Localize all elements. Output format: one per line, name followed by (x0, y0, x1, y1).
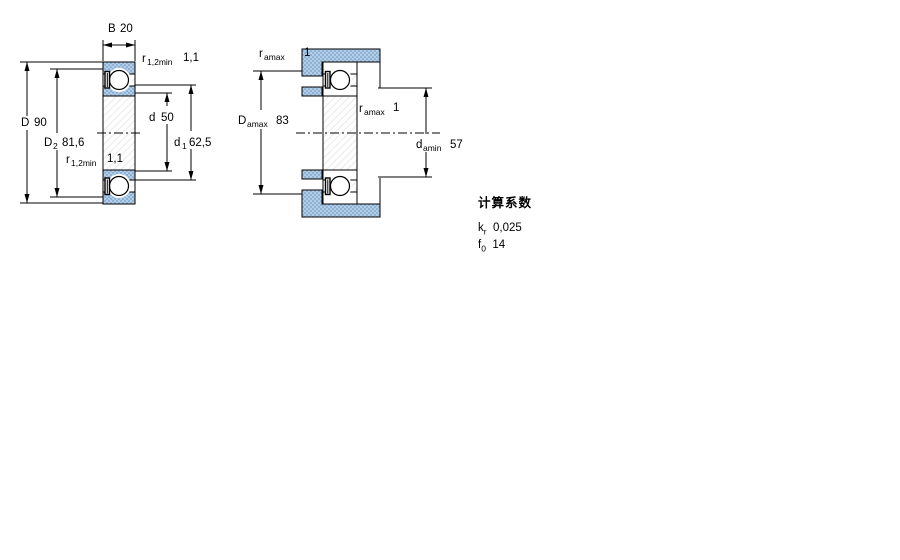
ball-top (331, 71, 350, 90)
label-d1-symbol: d (174, 137, 180, 149)
label-r12-top-symbol: r (142, 53, 146, 65)
bearing-datasheet-drawing: B 20 r 1,2min 1,1 D 90 D 2 81,6 r 1,2min… (0, 0, 900, 560)
label-r12-top-subscript: 1,2min (147, 57, 173, 67)
dimension-D2 (50, 69, 103, 197)
label-ramax-mid-value: 1 (393, 102, 399, 114)
label-D2-value: 81,6 (62, 137, 84, 149)
label-Damax-symbol: D (238, 115, 246, 127)
label-ramax-mid-subscript: amax (364, 107, 386, 117)
factor-f0-value: 14 (492, 239, 505, 251)
ball-bottom (331, 177, 350, 196)
label-r12-bottom-value: 1,1 (107, 153, 123, 165)
label-damin-value: 57 (450, 139, 463, 151)
label-damin-subscript: amin (423, 143, 442, 153)
shaft-shoulder-bottom (302, 170, 322, 179)
label-d1-value: 62,5 (189, 137, 211, 149)
label-r12-bottom-symbol: r (66, 154, 70, 166)
label-D2-symbol: D (44, 137, 52, 149)
factor-f0-subscript: 0 (481, 243, 486, 253)
label-ramax-top-symbol: r (259, 48, 263, 60)
factor-kr-subscript: r (484, 226, 487, 236)
label-D-value: 90 (34, 117, 47, 129)
label-ramax-top-subscript: amax (264, 52, 286, 62)
technical-drawing-canvas: B 20 r 1,2min 1,1 D 90 D 2 81,6 r 1,2min… (0, 0, 900, 560)
calculation-factors-block: 计算系数 kr 0,025 f0 14 (478, 192, 532, 254)
bearing-section-drawing: B 20 r 1,2min 1,1 D 90 D 2 81,6 r 1,2min… (20, 23, 211, 204)
ball-bottom (110, 177, 129, 196)
dimension-Damax (253, 71, 302, 194)
label-d-symbol: d (149, 112, 155, 124)
shaft-shoulder-top (302, 87, 322, 96)
label-r12-bottom-subscript: 1,2min (71, 158, 97, 168)
label-B-symbol: B (108, 23, 116, 35)
mounting-drawing: r amax 1 D amax 83 r amax 1 d amin 57 (238, 47, 463, 217)
label-ramax-mid-symbol: r (359, 103, 363, 115)
factor-kr-value: 0,025 (493, 222, 522, 234)
label-r12-top-value: 1,1 (183, 52, 199, 64)
dimension-D (20, 62, 103, 203)
factor-f0: f0 14 (478, 237, 532, 254)
ball-top (110, 71, 129, 90)
label-d-value: 50 (161, 112, 174, 124)
calculation-factors-title: 计算系数 (478, 192, 532, 211)
label-D-symbol: D (21, 117, 29, 129)
label-D2-subscript: 2 (53, 141, 58, 151)
dimension-B (103, 40, 135, 61)
factor-kr: kr 0,025 (478, 220, 532, 237)
label-Damax-subscript: amax (247, 119, 269, 129)
label-Damax-value: 83 (276, 115, 289, 127)
label-damin-symbol: d (416, 139, 422, 151)
label-B-value: 20 (120, 23, 133, 35)
label-d1-subscript: 1 (182, 141, 187, 151)
dimension-d (135, 93, 172, 171)
label-ramax-top-value: 1 (304, 47, 310, 59)
